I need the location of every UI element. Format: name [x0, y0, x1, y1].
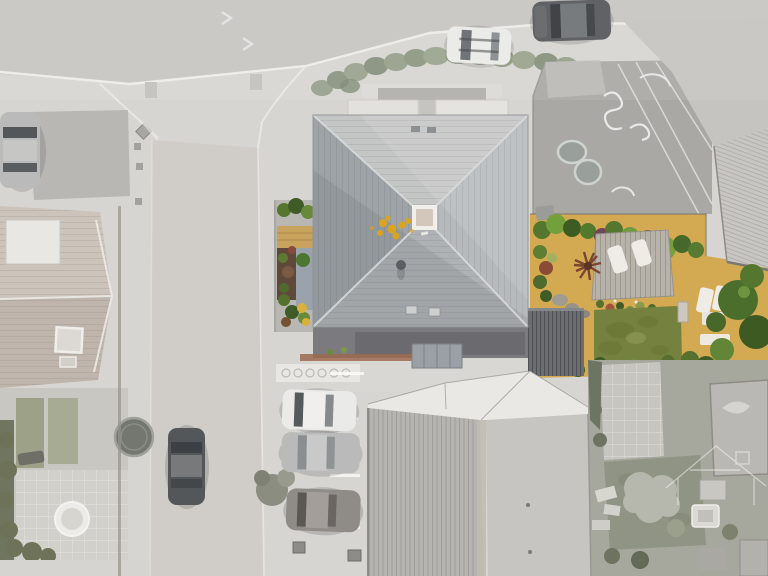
driveway-silver-car — [278, 430, 363, 477]
hot-tub-inner — [698, 510, 713, 522]
car-rear-window — [325, 394, 334, 426]
driveway-grey-car — [282, 486, 364, 537]
tree-canopy — [740, 264, 764, 288]
wall-plant — [327, 349, 333, 355]
car-roof — [306, 492, 329, 529]
car-roof — [303, 392, 326, 429]
small-shed — [740, 540, 768, 576]
planter-box — [678, 302, 688, 322]
street-surface — [150, 140, 264, 576]
drain-cover — [136, 163, 143, 170]
roof-speck — [526, 503, 530, 507]
paver-strip — [436, 100, 508, 116]
top-left-driveway — [0, 110, 130, 200]
garden-wall — [118, 206, 121, 576]
roof-vent — [427, 127, 436, 133]
side-hedge-strip — [588, 360, 602, 430]
tree-canopy — [710, 338, 734, 362]
border-fence-line — [274, 200, 276, 332]
roof-vent — [406, 306, 417, 314]
lawn-strip — [48, 398, 78, 464]
aerial-photo — [0, 0, 768, 576]
top-left-car — [0, 112, 46, 192]
pond-lobe — [575, 160, 601, 184]
smooth-roof-plane — [486, 414, 591, 576]
side-border-strip — [274, 198, 315, 332]
car-windshield — [3, 127, 37, 138]
neighbor-flat-roof — [6, 220, 60, 264]
roof-lantern-glass — [416, 209, 433, 226]
roof-ridge-strip — [477, 420, 486, 576]
tree-canopy — [254, 470, 270, 486]
ribbed-roof-texture — [368, 408, 484, 576]
neighbor-skylight-small — [60, 357, 76, 367]
car-rear-window — [3, 163, 37, 172]
side-street — [134, 140, 264, 576]
bottom-right-neighbor — [588, 360, 768, 576]
roof-vent — [411, 126, 420, 132]
wall-plant — [341, 347, 347, 353]
timber-path — [277, 226, 313, 248]
car-windshield — [297, 492, 307, 526]
car-rear-window — [171, 479, 202, 488]
tree-canopy — [706, 312, 726, 332]
extension-roof — [528, 308, 584, 376]
bottom-lane — [0, 560, 148, 576]
roof-speck — [528, 550, 532, 554]
left-neighbor-house — [0, 206, 112, 388]
small-shed — [700, 480, 726, 500]
haze-overlay — [0, 0, 768, 100]
car-roof — [306, 434, 327, 470]
car-roof — [171, 455, 202, 477]
vent-streak — [397, 266, 405, 280]
garden-store — [700, 548, 726, 570]
driveway-white-car — [278, 387, 360, 436]
drain-cover — [134, 143, 141, 150]
large-shed-roof — [710, 380, 768, 476]
drain-cover — [293, 542, 305, 553]
car-windshield — [294, 392, 304, 426]
street-dark-car — [165, 425, 209, 509]
hot-tub-cover — [61, 508, 83, 530]
pond — [558, 141, 586, 163]
car-roof — [3, 140, 37, 161]
car-windshield — [171, 442, 202, 453]
drain-cover — [135, 198, 142, 205]
drain-cover — [348, 550, 361, 561]
extension-ribs — [528, 308, 584, 376]
neighbor-skylight — [55, 327, 82, 352]
paver-strip — [348, 100, 418, 116]
tree-highlight — [738, 286, 750, 298]
extension-top-edge — [528, 308, 584, 311]
car-windshield — [297, 435, 307, 469]
car-rear-window — [328, 494, 337, 526]
roof-vent — [429, 308, 440, 316]
car-rear-window — [326, 437, 335, 469]
neighbor-patio-joints — [600, 362, 664, 460]
bay-line — [330, 372, 364, 375]
aerial-photo-canvas — [0, 0, 768, 576]
front-step — [419, 100, 435, 116]
main-house-roof — [313, 115, 528, 327]
deck-planks — [592, 230, 674, 300]
